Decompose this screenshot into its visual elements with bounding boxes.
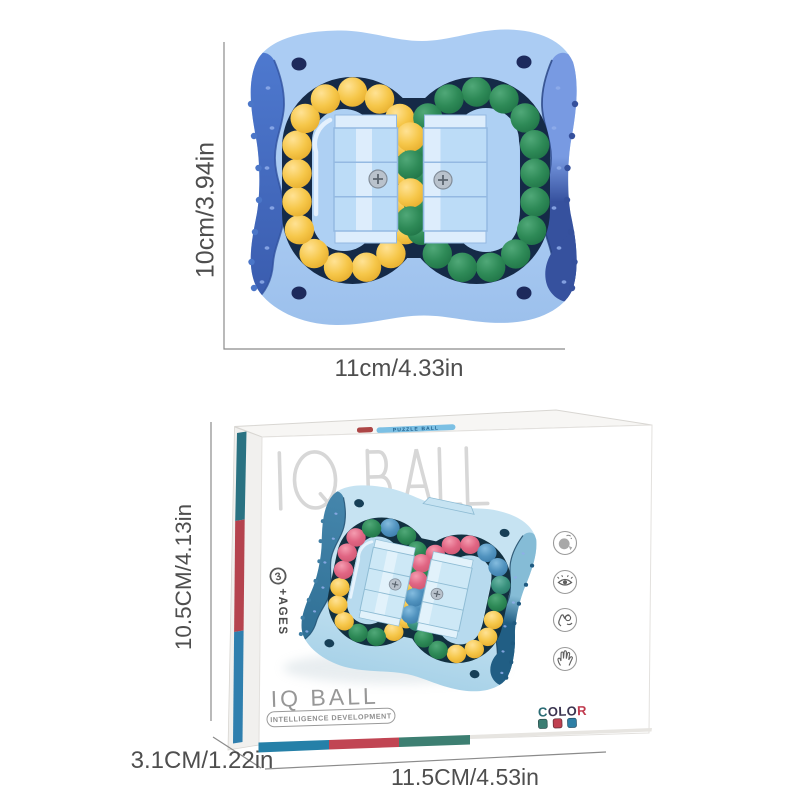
svg-text:COLOR: COLOR — [538, 703, 588, 720]
svg-text:10cm/3.94in: 10cm/3.94in — [192, 142, 220, 278]
svg-text:10.5CM/4.13in: 10.5CM/4.13in — [171, 504, 196, 650]
svg-text:IQ BALL: IQ BALL — [270, 683, 379, 712]
svg-text:3.1CM/1.22in: 3.1CM/1.22in — [131, 747, 274, 774]
svg-text:+AGES: +AGES — [276, 588, 288, 635]
svg-text:11.5CM/4.53in: 11.5CM/4.53in — [391, 764, 539, 790]
svg-text:11cm/4.33in: 11cm/4.33in — [335, 355, 464, 382]
